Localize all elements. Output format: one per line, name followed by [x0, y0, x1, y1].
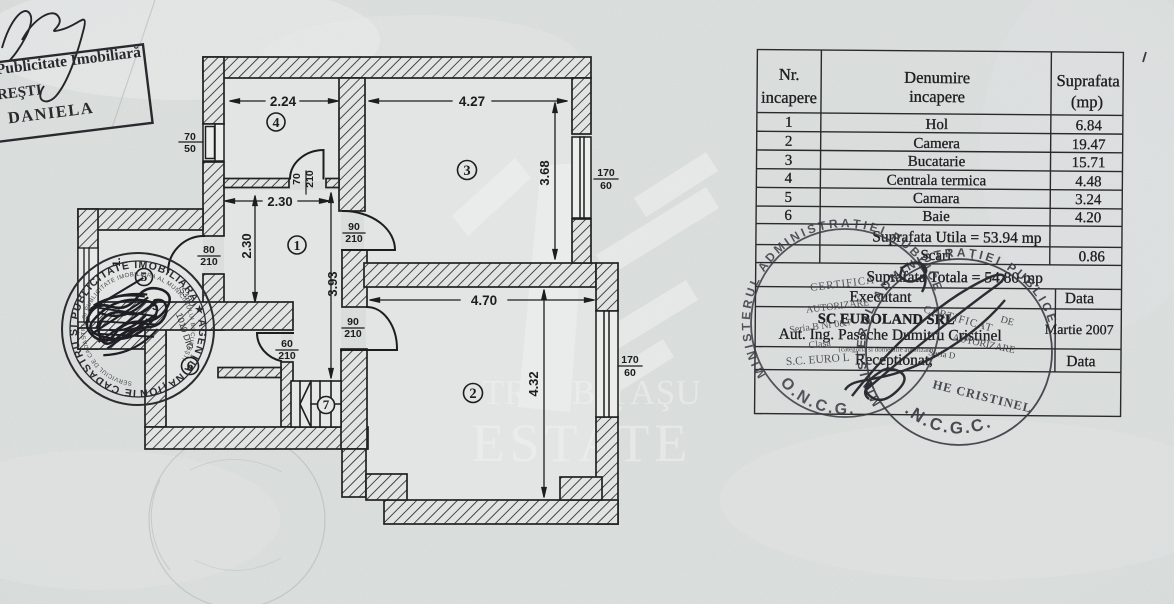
- svg-text:4: 4: [273, 116, 280, 131]
- svg-text:2: 2: [785, 134, 793, 150]
- svg-text:210: 210: [278, 350, 296, 362]
- svg-text:70: 70: [184, 131, 196, 143]
- svg-text:Hol: Hol: [926, 117, 949, 133]
- svg-text:4: 4: [785, 171, 793, 187]
- svg-text:ESTATE: ESTATE: [472, 413, 693, 473]
- svg-text:80: 80: [203, 244, 215, 256]
- svg-text:7: 7: [323, 397, 330, 412]
- svg-text:Centrala termica: Centrala termica: [887, 173, 987, 190]
- svg-text:4.20: 4.20: [1075, 210, 1101, 226]
- svg-text:70: 70: [291, 173, 303, 185]
- svg-text:19.47: 19.47: [1072, 137, 1106, 153]
- svg-text:6: 6: [784, 208, 792, 224]
- svg-text:Denumire: Denumire: [904, 68, 970, 88]
- svg-text:Camera: Camera: [913, 136, 960, 152]
- svg-text:3.68: 3.68: [537, 160, 552, 185]
- svg-text:(mp): (mp): [1071, 92, 1103, 111]
- svg-text:6.84: 6.84: [1076, 118, 1103, 134]
- svg-text:1: 1: [294, 239, 301, 254]
- svg-text:170: 170: [597, 167, 615, 179]
- svg-text:210: 210: [200, 256, 218, 268]
- svg-text:170: 170: [621, 354, 639, 366]
- svg-text:2.30: 2.30: [267, 194, 292, 209]
- svg-text:Nr.: Nr.: [779, 65, 800, 84]
- svg-text:4.27: 4.27: [459, 94, 485, 109]
- svg-text:3.24: 3.24: [1075, 192, 1102, 208]
- svg-text:2.30: 2.30: [239, 233, 254, 258]
- svg-text:Bucatarie: Bucatarie: [908, 154, 966, 170]
- svg-text:60: 60: [624, 367, 636, 379]
- svg-text:5: 5: [784, 190, 792, 206]
- svg-text:Baie: Baie: [922, 209, 950, 225]
- svg-text:Data: Data: [1066, 353, 1096, 370]
- svg-text:210: 210: [344, 328, 362, 340]
- svg-text:Camara: Camara: [913, 191, 960, 207]
- svg-text:50: 50: [184, 143, 196, 155]
- svg-text:Martie 2007: Martie 2007: [1045, 323, 1114, 339]
- svg-text:incapere: incapere: [909, 87, 965, 106]
- svg-text:2.24: 2.24: [270, 94, 297, 109]
- svg-text:15.71: 15.71: [1072, 155, 1106, 171]
- svg-text:2: 2: [469, 386, 476, 402]
- svg-text:90: 90: [347, 316, 359, 328]
- svg-text:210: 210: [345, 233, 363, 245]
- svg-text:Data: Data: [1065, 290, 1095, 307]
- svg-text:3.93: 3.93: [325, 271, 340, 296]
- svg-text:1: 1: [785, 115, 793, 131]
- svg-text:3: 3: [463, 163, 470, 179]
- svg-text:0.86: 0.86: [1079, 249, 1106, 265]
- svg-text:TRÎMBIŢAŞU: TRÎMBIŢAŞU: [483, 373, 702, 412]
- svg-text:60: 60: [600, 180, 612, 192]
- svg-text:4.32: 4.32: [526, 371, 541, 396]
- svg-text:4.48: 4.48: [1075, 174, 1101, 190]
- svg-text:4.70: 4.70: [471, 293, 497, 308]
- svg-text:Suprafata: Suprafata: [1056, 71, 1120, 91]
- svg-text:90: 90: [348, 221, 360, 233]
- svg-text:60: 60: [281, 338, 293, 350]
- svg-text:3: 3: [785, 153, 793, 169]
- svg-text:incapere: incapere: [761, 88, 817, 107]
